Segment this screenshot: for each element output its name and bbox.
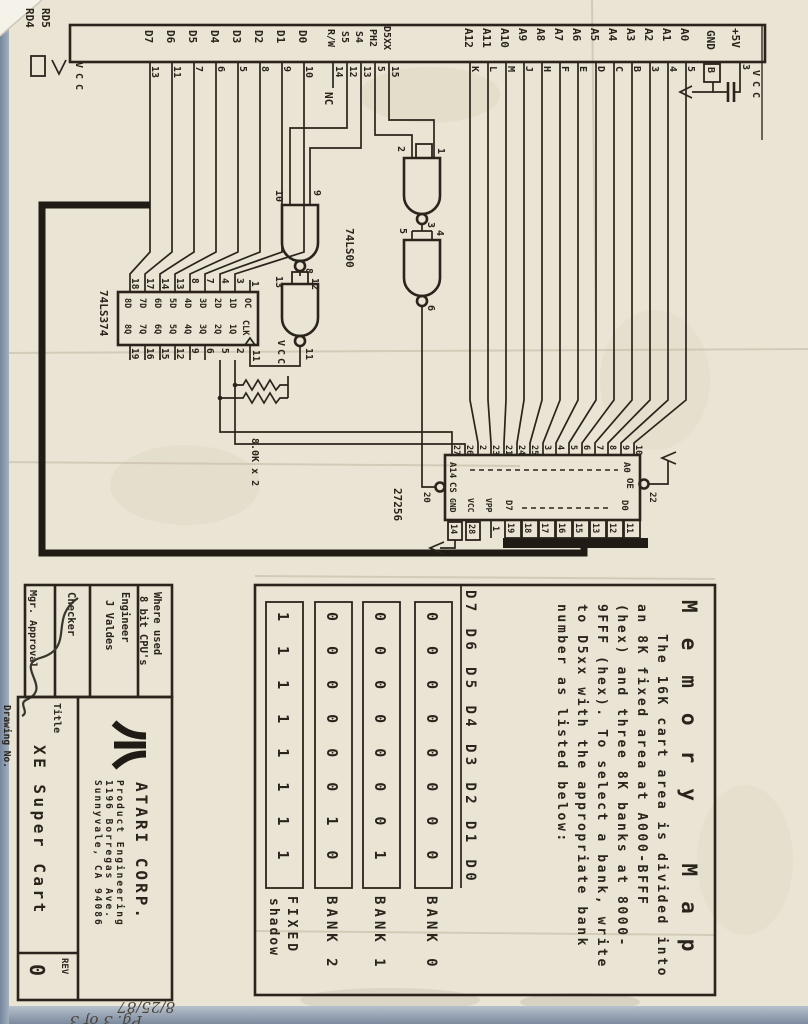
signal-label: A9 — [516, 28, 529, 41]
bank-label: BANK 1 — [371, 896, 387, 971]
pin-label: 6 — [581, 445, 591, 450]
pin-label: B — [705, 67, 716, 73]
bank-label: shadow — [266, 898, 281, 957]
ic-label: 27256 — [391, 488, 404, 521]
signal-label: A10 — [498, 28, 511, 48]
pin-label: 5 — [568, 445, 578, 450]
signal-label: A5 — [588, 28, 601, 41]
signal-label: RD5 — [39, 8, 52, 28]
engineer-label: Engineer — [119, 592, 131, 643]
pin-label: 13 — [174, 278, 185, 290]
signal-label: D0 — [296, 30, 309, 43]
signal-label: A0 — [678, 28, 691, 41]
pin-label: 9 — [620, 445, 630, 450]
pin-label: 4 — [434, 230, 445, 236]
signal-label: A12 — [462, 28, 475, 48]
pin-label: 27 — [451, 445, 461, 455]
cell-label: 2D — [212, 298, 222, 308]
cell-label: 4D — [182, 298, 192, 308]
company-address: Sunnyvale, CA 94086 — [92, 780, 103, 927]
cell-label: 2Q — [212, 324, 222, 334]
pin-label: 13 — [590, 523, 600, 533]
mgr-approval-label: Mgr. Approval — [27, 590, 38, 668]
signal-label: S4 — [353, 31, 364, 43]
cell-label: 1Q — [227, 324, 237, 334]
memory-map-line: 9FFF (hex). To select a bank, write — [594, 604, 609, 969]
pin-label: 3 — [740, 64, 751, 70]
signal-label: A3 — [624, 28, 637, 41]
signal-label: PH2 — [367, 29, 378, 47]
cell-label: VCC — [466, 498, 475, 513]
pin-label: 4 — [555, 445, 565, 450]
memory-map-line: an 8K fixed area at A000-BFFF — [634, 604, 649, 906]
pin-label: 13 — [273, 276, 284, 288]
company-address: 1196 Borregas Ave. — [103, 780, 114, 919]
vcc-label: VCC — [73, 62, 84, 95]
pin-label: 12 — [347, 66, 358, 77]
where-used-label: Where used — [151, 592, 163, 655]
pin-label: 2 — [477, 445, 487, 450]
pin-label: 25 — [529, 445, 539, 455]
pin-label: 12 — [174, 348, 185, 359]
pin-label: 24 — [516, 445, 526, 455]
handwritten-page: Pg. 3 of 3 — [70, 1012, 143, 1024]
signal-label: A2 — [642, 28, 655, 41]
signal-label: D7 — [142, 30, 155, 43]
cell-label: D0 — [619, 500, 629, 511]
pin-label: 13 — [361, 66, 372, 78]
pin-label: 3 — [425, 222, 436, 228]
pin-label: 14 — [159, 278, 170, 290]
pin-label: 19 — [129, 348, 140, 360]
cell-label: A14 — [447, 462, 457, 479]
pin-label: 12 — [607, 523, 617, 533]
pin-label: 22 — [647, 492, 657, 503]
drawing-title: XE Super Cart — [30, 745, 49, 916]
bank-label: BANK 0 — [423, 896, 439, 971]
pin-label: 17 — [144, 278, 155, 289]
company-dept: Product Engineering — [114, 780, 125, 927]
pin-label: 14 — [448, 524, 458, 534]
signal-label: A1 — [660, 28, 673, 42]
memory-map-line: number as listed below: — [554, 604, 569, 844]
cell-label: 1D — [227, 298, 237, 308]
signal-label: S5 — [339, 31, 350, 43]
pin-label: 18 — [129, 278, 140, 290]
cell-label: 4Q — [182, 324, 192, 334]
pin-label: 5 — [375, 66, 386, 72]
engineer-value: J Valdes — [103, 600, 115, 651]
pin-label: 16 — [144, 348, 155, 360]
pin-label: 11 — [250, 350, 261, 362]
signal-label: A7 — [552, 28, 565, 41]
cell-label: VPP — [484, 498, 493, 513]
signal-label: D5 — [186, 30, 199, 43]
memory-map-line: to D5xx with the appropriate bank — [574, 604, 589, 948]
pin-label: 2 — [395, 146, 406, 152]
pin-label: 9 — [311, 190, 322, 196]
signal-label: A11 — [480, 28, 493, 48]
pin-label: 5 — [397, 228, 408, 234]
signal-label: R/W — [325, 29, 336, 48]
cell-label: 5D — [167, 298, 177, 308]
vcc-label: VCC — [275, 340, 286, 367]
pin-label: 26 — [464, 445, 474, 455]
cell-label: 8Q — [122, 324, 132, 334]
pin-label: 19 — [505, 523, 515, 533]
resistor-value: 8.0K x 2 — [249, 438, 260, 486]
pin-label: 6 — [425, 305, 436, 311]
nc-label: NC — [322, 92, 335, 105]
cell-label: A0 — [621, 462, 631, 473]
pin-label: 17 — [539, 523, 549, 533]
pin-label: 16 — [556, 523, 566, 533]
signal-label: A4 — [606, 28, 619, 42]
plus5-label: +5V — [729, 28, 742, 48]
signal-label: D3 — [230, 30, 243, 43]
pin-label: 6 — [204, 348, 215, 354]
pin-label: 20 — [421, 492, 431, 503]
cell-label: CS — [447, 482, 457, 493]
signal-label: D6 — [164, 30, 177, 44]
pin-label: 12 — [309, 278, 320, 290]
pin-label: 7 — [204, 278, 215, 284]
pin-label: 1 — [435, 148, 446, 154]
signal-label: D4 — [208, 30, 221, 44]
pin-label: 9 — [189, 348, 200, 354]
cell-label: 3D — [197, 298, 207, 308]
memory-map-line: The 16K cart area is divided into — [654, 634, 669, 978]
cell-label: OE — [624, 478, 634, 489]
vcc-label: VCC — [750, 70, 761, 103]
bit-table-header: D7 D6 D5 D4 D3 D2 D1 D0 — [462, 590, 478, 885]
gnd-label: GND — [704, 30, 717, 50]
schematic-canvas: RD4 RD5 VCC D7 D6 D5 D4 D3 D2 D1 D0 13 1… — [0, 0, 808, 1024]
pin-label: 18 — [522, 523, 532, 533]
cell-label: 6D — [152, 298, 162, 308]
pin-label: 14 — [333, 66, 344, 78]
pin-label: 2 — [234, 348, 245, 354]
pin-label: 15 — [573, 523, 583, 533]
signal-label: D5XX — [381, 26, 392, 50]
company-name: ATARI CORP. — [132, 782, 151, 921]
cell-label: 7Q — [137, 324, 147, 334]
ic-label: 74LS374 — [97, 290, 110, 337]
cell-label: 5Q — [167, 324, 177, 334]
title-label: Title — [51, 703, 63, 733]
rev-label: REV — [59, 958, 69, 975]
bit-row: 0 0 0 0 0 0 0 1 — [371, 612, 389, 867]
signal-label: A6 — [570, 28, 583, 42]
drawing-no-label: Drawing No. — [1, 705, 12, 768]
scanned-schematic-sheet: RD4 RD5 VCC D7 D6 D5 D4 D3 D2 D1 D0 13 1… — [0, 0, 808, 1024]
cell-label: 7D — [137, 298, 147, 308]
signal-label: D1 — [274, 30, 287, 44]
pin-label: 8 — [189, 278, 200, 284]
where-used-value: 8 bit CPU's — [137, 596, 149, 666]
pin-label: 11 — [624, 523, 634, 533]
pin-label: 5 — [219, 348, 230, 354]
pin-label: 15 — [389, 66, 400, 78]
ic-label: 74LS00 — [343, 228, 356, 268]
cell-label: 6Q — [152, 324, 162, 334]
pin-label: 23 — [490, 445, 500, 455]
pin-label: 21 — [503, 445, 513, 455]
pin-label: 3 — [234, 278, 245, 284]
signal-label: RD4 — [23, 8, 36, 28]
bit-row: 0 0 0 0 0 0 0 0 — [423, 612, 441, 867]
cell-label: GND — [448, 498, 457, 513]
pin-label: 1 — [249, 281, 260, 287]
cell-label: OC — [242, 298, 252, 308]
cell-label: D7 — [503, 500, 513, 511]
pin-label: 28 — [466, 524, 476, 534]
memory-map-line: (hex) and three 8K banks at 8000- — [614, 604, 629, 948]
rev-value: 0 — [25, 964, 49, 976]
pin-label: 11 — [303, 348, 314, 360]
bit-row: 0 0 0 0 0 0 1 0 — [323, 612, 341, 867]
signal-label: A8 — [534, 28, 547, 41]
pin-label: 15 — [159, 348, 170, 360]
bank-label: FIXED — [284, 896, 299, 955]
pin-label: 1 — [490, 526, 500, 531]
memory-map-title: Memory Map — [677, 600, 701, 976]
pin-label: 4 — [219, 278, 230, 284]
pin-label: 10 — [273, 190, 284, 202]
pin-label: 8 — [607, 445, 617, 450]
cell-label: 8D — [122, 298, 132, 308]
pin-label: 7 — [594, 445, 604, 450]
pin-label: 3 — [542, 445, 552, 450]
cell-label: CLK — [240, 320, 250, 336]
pin-label: 10 — [633, 445, 643, 455]
bank-label: BANK 2 — [323, 896, 339, 971]
bit-row: 1 1 1 1 1 1 1 1 — [274, 612, 292, 867]
cell-label: 3Q — [197, 324, 207, 334]
signal-label: D2 — [252, 30, 265, 43]
